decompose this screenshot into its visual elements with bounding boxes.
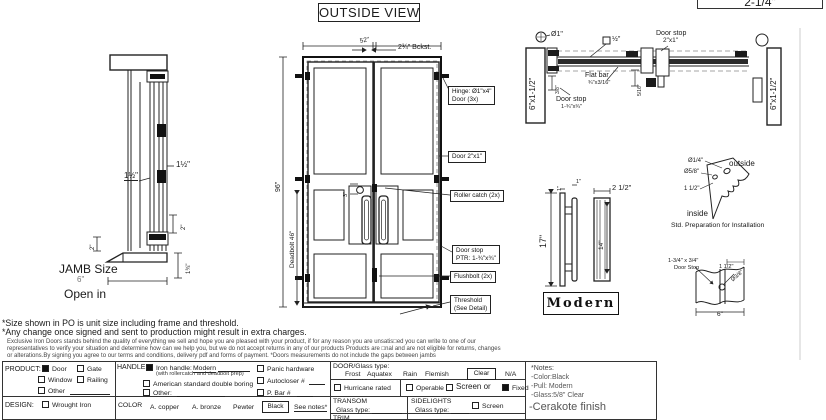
glass-operable-label: Operable: [416, 385, 444, 392]
head-stop1-line2: 2"x1": [663, 38, 678, 45]
color-see-notes-link[interactable]: See notes*: [294, 404, 327, 412]
glass-frost-option[interactable]: Frost: [345, 371, 360, 378]
stopdetail-offset-dim: 1 1/2": [719, 265, 733, 271]
jamb-swing-label: Open in: [64, 288, 106, 301]
notes-pull: -Pull: Modern: [531, 383, 573, 390]
cropped-detail-box: 2-1/4": [697, 0, 823, 9]
checkbox-autocloser[interactable]: [257, 377, 264, 384]
door-frame-callout: Door 2"x1": [448, 151, 486, 163]
pull-dim-1a: 1": [558, 186, 564, 191]
checkbox-product-other[interactable]: [38, 387, 45, 394]
head-stop2-line1: Door stop: [556, 96, 586, 103]
flushbolt-callout: Flushbolt (2x): [450, 271, 496, 283]
color-bronze-option[interactable]: A. bronze: [192, 404, 221, 411]
form-divider: [400, 379, 401, 396]
checkbox-sidelight-screen[interactable]: [472, 402, 479, 409]
hinge-callout: Hinge: Ø1"x4"Door (3x): [448, 86, 495, 105]
door-lock-offset-dim: 3": [344, 192, 350, 197]
disclaimer-para3: or alterations.By signing you agree to o…: [7, 353, 436, 359]
handle-iron-note: (with rollercatch and deadbolt prep): [156, 372, 244, 378]
checkbox-railing[interactable]: [77, 376, 84, 383]
transom-glass-blank[interactable]: [372, 407, 402, 414]
prep-outside-label: outside: [729, 160, 755, 168]
sidelights-glass-label: Glass type:: [415, 407, 449, 414]
stopdetail-width-dim: 6": [717, 312, 723, 319]
form-divider: [330, 361, 331, 420]
head-flatbar-line1: Flat bar: [585, 72, 609, 79]
transom-label: TRANSOM: [333, 398, 367, 405]
prep-caption: Std. Preparation for Installation: [671, 222, 764, 229]
glass-rain-option[interactable]: Rain: [403, 371, 417, 378]
pull-dim-1b: 1": [576, 180, 581, 186]
prep-hole-big-label: Ø5/8": [684, 169, 699, 175]
disclaimer-para1: Exclusive Iron Doors stands behind the q…: [7, 339, 476, 345]
stopdetail-size-line1: 1-3/4" x 3/4": [668, 259, 698, 265]
checkbox-hurricane[interactable]: [334, 384, 341, 391]
color-copper-option[interactable]: A. copper: [150, 404, 179, 411]
checkbox-iron-handle[interactable]: [146, 364, 153, 371]
handle-autocloser-label: Autocloser #: [267, 378, 305, 385]
handle-american-label: American standard double boring: [153, 381, 253, 388]
product-label: PRODUCT:: [5, 366, 41, 373]
head-hinge-dia-label: Ø1": [551, 31, 563, 38]
glass-clear-selected[interactable]: Clear: [467, 368, 496, 380]
product-other-label: Other: [48, 388, 65, 395]
notes-color: -Color:Black: [531, 374, 569, 381]
transom-glass-label: Glass type:: [336, 407, 370, 414]
door-stop-callout: Door stopPTR: 1-¾"x¾": [452, 245, 500, 264]
checkbox-gate[interactable]: [77, 365, 84, 372]
glass-na-option[interactable]: N/A: [505, 371, 516, 378]
head-stop2-line2: 1-¾"x¾": [561, 105, 582, 111]
head-jamb-right-label: 6"x1-1/2": [770, 78, 778, 110]
door-backset-dim: 2¾" Bckst.: [398, 44, 431, 51]
checkbox-fixed[interactable]: [502, 384, 509, 391]
roller-catch-callout: Roller catch (2x): [450, 190, 504, 202]
head-jamb-left-label: 6"x1-1/2": [529, 78, 537, 110]
checkbox-wrought-iron[interactable]: [42, 401, 49, 408]
checkbox-window[interactable]: [38, 376, 45, 383]
pull-top-dim: 2 1/2": [612, 184, 631, 192]
glass-flemish-option[interactable]: Flemish: [425, 371, 449, 378]
design-label: DESIGN:: [5, 402, 34, 409]
sidelights-label: SIDELIGHTS: [411, 398, 451, 405]
head-dim-a: 3/8": [556, 85, 561, 94]
jamb-dim-inner: 1½": [124, 172, 138, 181]
glass-fixed-label: Fixed: [512, 385, 529, 392]
pull-grip-dim: 14": [599, 240, 606, 250]
design-wrought-label: Wrought Iron: [52, 402, 91, 409]
head-flatbar-line2: ¾"x3/16": [588, 81, 610, 87]
cropped-detail-label: 2-1/4": [744, 0, 776, 9]
threshold-callout: Threshold(See Detail): [450, 295, 491, 314]
product-railing-label: Railing: [87, 377, 108, 384]
sidelights-screen-label: Screen: [482, 403, 504, 410]
disclaimer-para2: representatives to verify your situation…: [7, 346, 501, 352]
door-height-dim: 96": [275, 182, 282, 192]
jamb-dim-right-top: 2": [181, 225, 187, 230]
color-label: COLOR: [118, 402, 142, 409]
checkbox-door[interactable]: [42, 365, 49, 372]
form-divider: [115, 361, 116, 420]
prep-offset-label: 1 1/2": [684, 186, 699, 192]
disclaimer-line2: *Any change once signed and sent to prod…: [2, 328, 307, 337]
checkbox-handle-other[interactable]: [143, 389, 150, 396]
checkbox-pbar[interactable]: [257, 389, 264, 396]
pull-height-dim: 17": [539, 235, 548, 248]
jamb-dim-outer: 1½": [176, 161, 190, 169]
trim-label: TRIM: [333, 415, 350, 420]
prep-hole-small-label: Ø1/4": [688, 158, 703, 164]
product-window-label: Window: [48, 377, 72, 384]
glass-aquatex-option[interactable]: Aquatex: [367, 371, 392, 378]
head-dim-b: 5/16": [638, 84, 643, 96]
checkbox-american-boring[interactable]: [143, 380, 150, 387]
notes-title: *Notes:: [531, 365, 554, 372]
jamb-size-label: JAMB Size: [59, 263, 118, 276]
head-tube-label: ½": [612, 36, 620, 43]
view-title: OUTSIDE VIEW: [318, 3, 420, 22]
door-deadbolt-dim: Deadbolt 46": [290, 231, 297, 268]
form-divider: [407, 396, 408, 420]
jamb-size-value: 6": [77, 276, 84, 284]
handle-other-label: Other:: [153, 390, 172, 397]
drawing-sheet: OUTSIDE VIEW 2-1/4" 1½" 1½" 2" 2" 1¾" JA…: [0, 0, 826, 420]
checkbox-operable[interactable]: [406, 384, 413, 391]
prep-inside-label: inside: [687, 210, 708, 218]
glass-label: DOOR/Glass type:: [333, 363, 389, 370]
sidelights-glass-blank[interactable]: [451, 407, 469, 414]
product-door-label: Door: [52, 366, 67, 373]
pull-style-name: Modern: [543, 292, 619, 315]
handle-label: HANDLE:: [117, 364, 147, 371]
handle-other-blank[interactable]: [177, 390, 225, 397]
pbar-blank[interactable]: [297, 390, 313, 397]
handle-pbar-label: P. Bar #: [267, 390, 291, 397]
color-pewter-option[interactable]: Pewter: [233, 404, 254, 411]
stopdetail-size-line2: Door Stop: [674, 266, 699, 272]
glass-screen-or-label: Screen or: [456, 383, 491, 391]
form-divider: [2, 396, 525, 397]
checkbox-panic-hardware[interactable]: [257, 365, 264, 372]
product-other-blank[interactable]: [70, 388, 110, 395]
color-black-selected[interactable]: Black: [262, 401, 289, 413]
glass-hurricane-label: Hurricane rated: [344, 385, 391, 392]
notes-finish: -Cerakote finish: [529, 402, 606, 414]
checkbox-screen[interactable]: [446, 384, 453, 391]
jamb-dim-left: 2": [90, 245, 96, 250]
product-gate-label: Gate: [87, 366, 102, 373]
notes-glass: -Glass:5/8" Clear: [531, 392, 584, 399]
autocloser-blank[interactable]: [309, 378, 325, 385]
handle-panic-label: Panic hardware: [267, 366, 314, 373]
jamb-dim-right-bottom: 1¾": [186, 264, 192, 274]
